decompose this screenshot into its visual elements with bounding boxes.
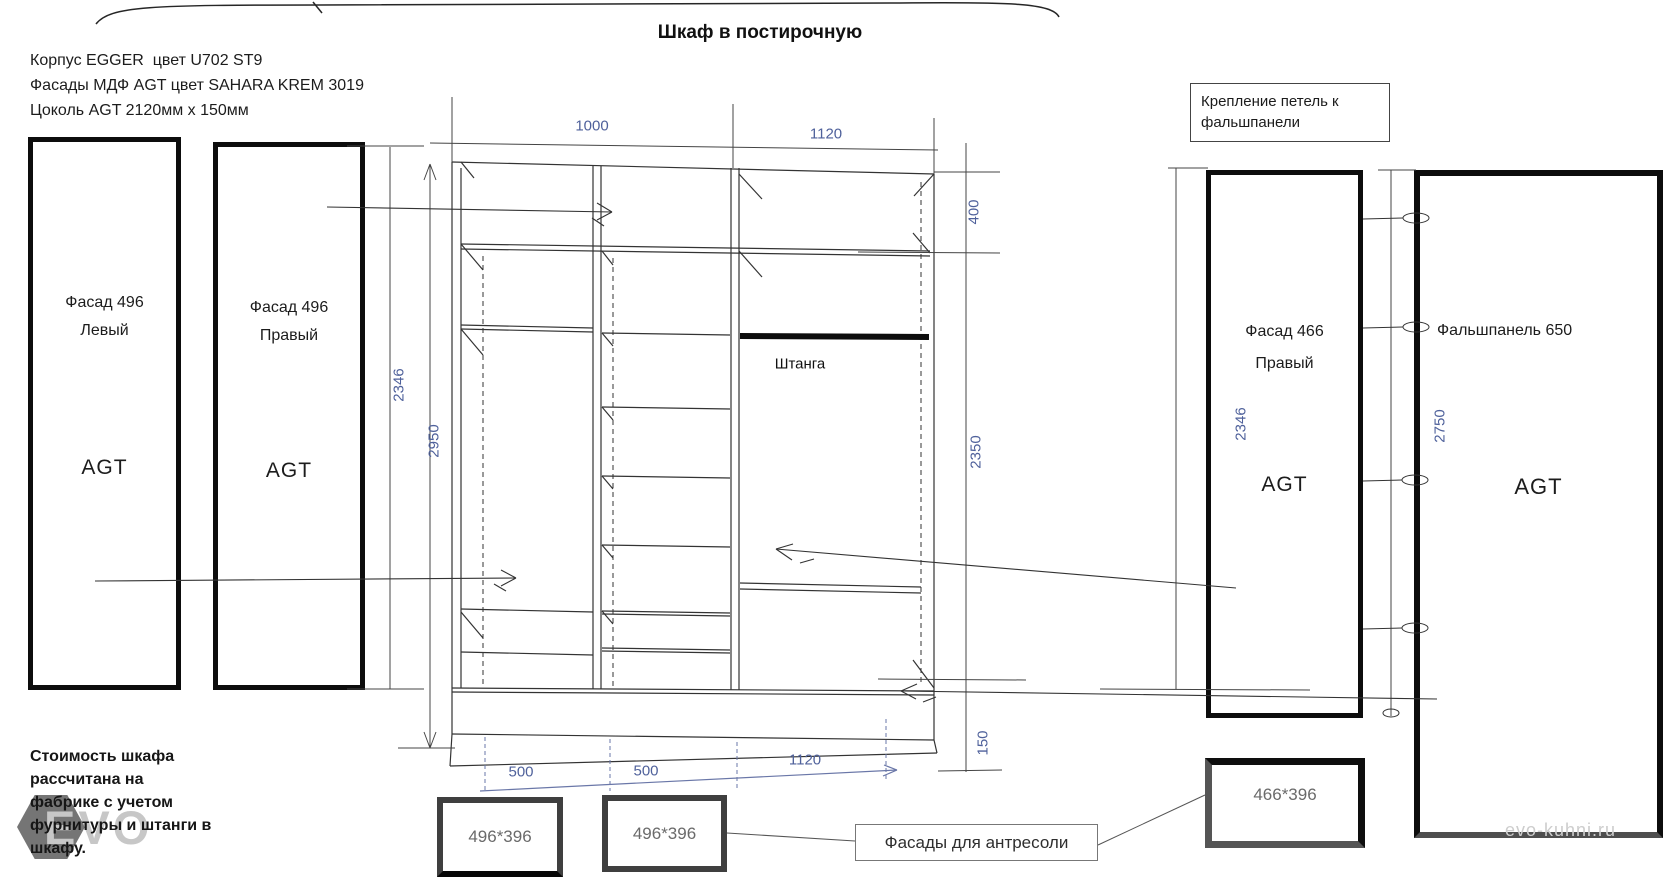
cost-note: Стоимость шкафарассчитана нафабрике с уч… bbox=[30, 745, 260, 860]
dim-height-2950: 2950 bbox=[426, 424, 443, 457]
dim-height-2346: 2346 bbox=[391, 368, 408, 401]
panel-label: Фасад 496 bbox=[218, 299, 360, 317]
cost-note-line: шкафу. bbox=[30, 840, 86, 857]
mezzanine-size-box-3: 466*396 bbox=[1205, 758, 1365, 848]
dim-mezzanine-400: 400 bbox=[966, 199, 983, 224]
hinge-callout-box: Крепление петель кфальшпанели bbox=[1190, 83, 1390, 142]
panel-label: Фасад 466 bbox=[1211, 323, 1358, 341]
size-label: 496*396 bbox=[468, 827, 531, 847]
panel-label: Фасад 496 bbox=[33, 294, 176, 312]
panel-brand-label: AGT bbox=[33, 456, 176, 480]
dim-interior-2350: 2350 bbox=[968, 435, 985, 468]
dim-plinth-150: 150 bbox=[975, 730, 992, 755]
mezzanine-facades-text: Фасады для антресоли bbox=[885, 833, 1069, 853]
false-panel-title: Фальшпанель 650 bbox=[1437, 322, 1572, 340]
spec-block: Корпус EGGER цвет U702 ST9Фасады МДФ AGT… bbox=[30, 48, 364, 123]
hinge-callout-line1: Крепление петель к bbox=[1201, 93, 1339, 110]
spec-line-body: Корпус EGGER цвет U702 ST9 bbox=[30, 52, 262, 69]
panel-facade-466: Фасад 466 Правый AGT bbox=[1206, 170, 1363, 718]
spec-line-plinth: Цоколь AGT 2120мм x 150мм bbox=[30, 102, 249, 119]
hinge-callout-line2: фальшпанели bbox=[1201, 114, 1300, 131]
cost-note-line: Стоимость шкафа bbox=[30, 748, 174, 765]
cost-note-line: фурнитуры и штанги в bbox=[30, 817, 211, 834]
drawing-canvas: Шкаф в постирочную Корпус EGGER цвет U70… bbox=[0, 0, 1677, 883]
dim-bottom-1120: 1120 bbox=[789, 752, 821, 769]
panel-side-label: Правый bbox=[1211, 355, 1358, 373]
size-label: 496*396 bbox=[633, 824, 696, 844]
panel-side-label: Левый bbox=[33, 322, 176, 340]
dim-width-1000: 1000 bbox=[575, 118, 608, 135]
panel-side-label: Правый bbox=[218, 327, 360, 345]
panel-brand-label: AGT bbox=[1211, 473, 1358, 497]
mezzanine-size-box-2: 496*396 bbox=[602, 795, 727, 872]
panel-facade-496-right: Фасад 496 Правый AGT bbox=[213, 142, 365, 690]
dim-width-1120: 1120 bbox=[810, 126, 842, 143]
size-label: 466*396 bbox=[1253, 785, 1316, 805]
panel-facade-496-left: Фасад 496 Левый AGT bbox=[28, 137, 181, 690]
rod-label: Штанга bbox=[775, 356, 826, 373]
page-title: Шкаф в постирочную bbox=[600, 22, 920, 44]
panel-false-panel-650: AGT bbox=[1414, 170, 1663, 838]
cost-note-line: фабрике с учетом bbox=[30, 794, 173, 811]
panel-brand-label: AGT bbox=[218, 459, 360, 483]
mezzanine-facades-label: Фасады для антресоли bbox=[855, 824, 1098, 861]
cost-note-line: рассчитана на bbox=[30, 771, 143, 788]
dim-bottom-500-a: 500 bbox=[508, 764, 533, 781]
mezzanine-size-box-1: 496*396 bbox=[437, 797, 563, 877]
dim-bottom-500-b: 500 bbox=[633, 763, 658, 780]
panel-brand-label: AGT bbox=[1420, 474, 1657, 500]
spec-line-facades: Фасады МДФ AGT цвет SAHARA KREM 3019 bbox=[30, 77, 364, 94]
dim-falsepanel-2750: 2750 bbox=[1432, 409, 1449, 442]
dim-facade466-2346: 2346 bbox=[1233, 407, 1250, 440]
evo-site-watermark: evo-kuhni.ru bbox=[1505, 820, 1616, 841]
